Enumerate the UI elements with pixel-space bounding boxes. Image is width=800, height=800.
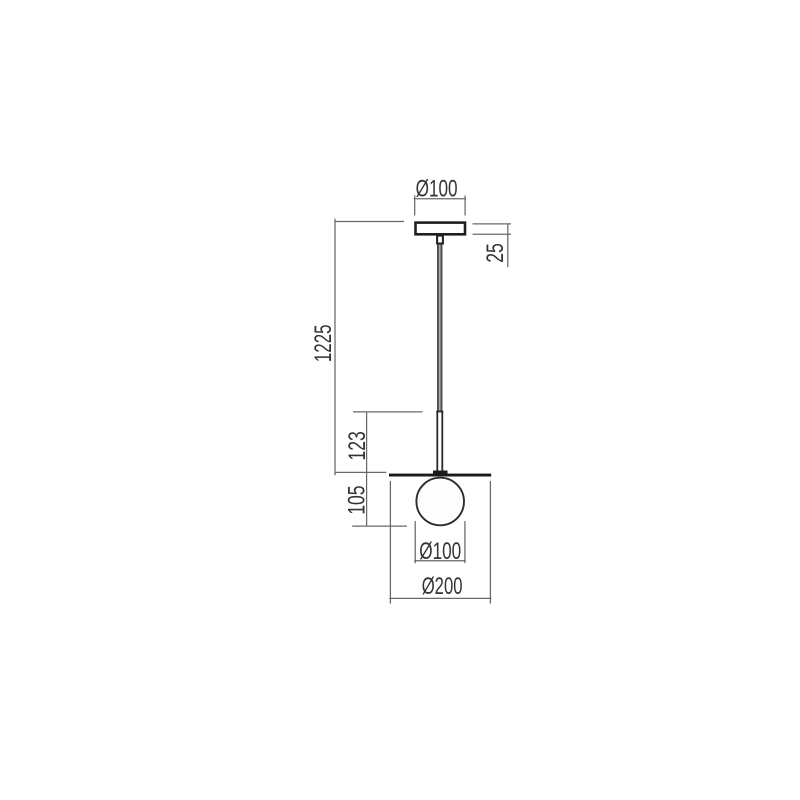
svg-text:Ø100: Ø100 (419, 538, 461, 565)
svg-text:Ø200: Ø200 (422, 573, 463, 600)
svg-text:1225: 1225 (310, 325, 337, 363)
svg-text:105: 105 (343, 485, 371, 514)
svg-text:25: 25 (481, 243, 509, 263)
svg-text:123: 123 (343, 431, 371, 460)
svg-text:Ø100: Ø100 (416, 175, 458, 202)
